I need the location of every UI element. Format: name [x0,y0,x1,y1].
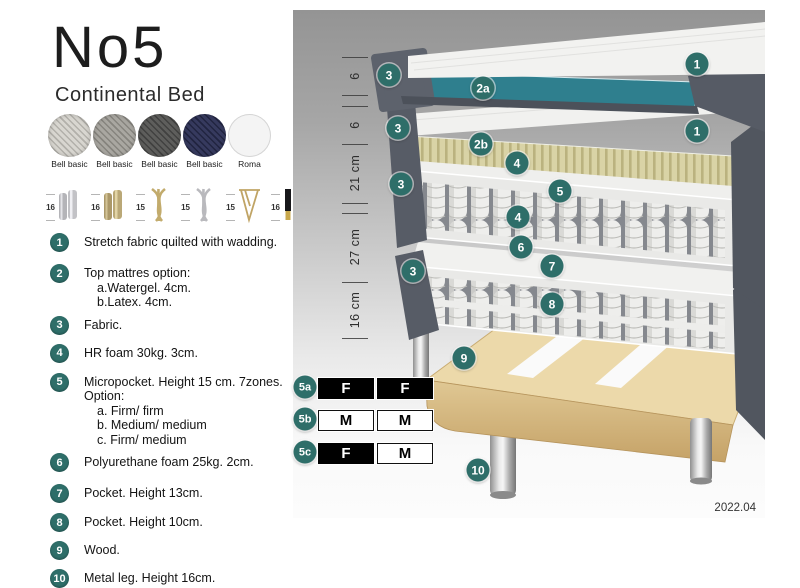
leg-height-label: 16 [269,203,280,212]
feature-item: 2Top mattres option:a.Watergel. 4cm.b.La… [50,264,300,310]
callout-badge-10: 10 [467,459,490,482]
fabric-swatch-label: Bell basicMCD36 [47,160,92,170]
ruler-tick [342,144,368,145]
feature-number-badge: 6 [50,453,69,472]
fabric-swatch-label: Bell basicMCD74 [182,160,227,170]
feature-number-badge: 8 [50,513,69,532]
feature-sub-option: b. Medium/ medium [84,418,300,433]
ruler-label: 21 cm [348,155,362,192]
firmness-cell: F [318,378,374,399]
feature-number-badge: 10 [50,569,69,588]
feature-text: Metal leg. Height 16cm. [84,569,215,586]
feature-item: 10Metal leg. Height 16cm. [50,569,300,588]
firmness-badge-5b: 5b [294,408,317,431]
bed-diagram-panel: 6621 cm27 cm16 cm 132a132b43546378910 5a… [293,10,765,518]
feature-text: Pocket. Height 10cm. [84,513,203,530]
ruler-label: 27 cm [348,229,362,266]
feature-sub-option: c. Firm/ medium [84,433,300,448]
feature-number-badge: 1 [50,233,69,252]
ruler-label: 6 [348,72,362,79]
callout-badge-2b: 2b [470,133,493,156]
feature-text: HR foam 30kg. 3cm. [84,344,198,361]
leg-height-label: 15 [134,203,145,212]
callout-badge-2a: 2a [472,77,495,100]
ruler-label: 6 [348,121,362,128]
cyl-gold-leg-icon [101,186,128,229]
fabric-swatch: Bell basicMCD43 [137,114,182,170]
leg-option: 16 [44,186,89,229]
ruler-tick [342,282,368,283]
fabric-swatch-circle [93,114,136,157]
feature-sub-option: b.Latex. 4cm. [84,295,191,310]
leg-height-label: 16 [89,203,100,212]
feature-text: Top mattres option:a.Watergel. 4cm.b.Lat… [84,264,191,310]
feature-item: 1Stretch fabric quilted with wadding. [50,233,300,252]
metal-leg-right [690,418,712,485]
firmness-cell: M [318,410,374,431]
callout-badge-4: 4 [507,206,530,229]
feature-sub-option: a. Firm/ firm [84,404,300,419]
fabric-swatch-row: Bell basicMCD36Bell basicMCD32Bell basic… [47,114,272,170]
product-title: No5 [52,14,167,81]
feature-number-badge: 4 [50,344,69,363]
callout-badge-6: 6 [510,236,533,259]
fabric-swatch-circle [183,114,226,157]
height-ruler: 6621 cm27 cm16 cm [342,10,372,430]
fabric-swatch-label: Romastretch fabric [227,160,272,170]
ruler-tick [342,106,368,107]
feature-item: 5Micropocket. Height 15 cm. 7zones. Opti… [50,373,300,448]
feature-item: 3Fabric. [50,316,300,335]
metal-leg-front [490,430,516,499]
fabric-swatch-label: Bell basicMCD43 [137,160,182,170]
leg-option: 15 [224,186,269,229]
callout-badge-3: 3 [387,117,410,140]
ruler-tick [342,213,368,214]
feature-item: 4HR foam 30kg. 3cm. [50,344,300,363]
leg-options-row: 161615151516 [44,186,314,229]
leg-height-label: 15 [179,203,190,212]
feature-text: Fabric. [84,316,122,333]
leg-option: 15 [179,186,224,229]
feature-number-badge: 3 [50,316,69,335]
feature-list: 1Stretch fabric quilted with wadding.2To… [50,233,300,588]
feature-text: Polyurethane foam 25kg. 2cm. [84,453,254,470]
ruler-tick [342,338,368,339]
callout-badge-1: 1 [686,120,709,143]
fabric-swatch: Romastretch fabric [227,114,272,170]
callout-badge-9: 9 [453,347,476,370]
cyl-silver-leg-icon [56,186,83,229]
fabric-swatch-circle [138,114,181,157]
twist-silver-leg-icon [191,186,218,229]
twist-gold-leg-icon [146,186,173,229]
feature-item: 6Polyurethane foam 25kg. 2cm. [50,453,300,472]
ruler-tick [342,95,368,96]
leg-height-label: 15 [224,203,235,212]
callout-badge-8: 8 [541,293,564,316]
feature-number-badge: 2 [50,264,69,283]
fabric-swatch: Bell basicMCD36 [47,114,92,170]
feature-text: Wood. [84,541,120,558]
firmness-badge-5c: 5c [294,441,317,464]
firmness-cell: M [377,443,433,464]
feature-text: Stretch fabric quilted with wadding. [84,233,277,250]
feature-sub-option: a.Watergel. 4cm. [84,281,191,296]
ruler-label: 16 cm [348,292,362,329]
firmness-badge-5a: 5a [294,376,317,399]
leg-height-label: 16 [44,203,55,212]
feature-number-badge: 7 [50,484,69,503]
feature-item: 8Pocket. Height 10cm. [50,513,300,532]
callout-badge-5: 5 [549,180,572,203]
firmness-cell: M [377,410,433,431]
callout-badge-1: 1 [686,53,709,76]
spec-column: No5 Continental Bed Bell basicMCD36Bell … [0,0,293,533]
leg-option: 16 [89,186,134,229]
feature-item: 9Wood. [50,541,300,560]
fabric-swatch-circle [48,114,91,157]
firmness-bar: FF [318,378,433,399]
product-subtitle: Continental Bed [55,84,205,107]
hairpin-leg-icon [236,186,263,229]
firmness-cell: F [377,378,433,399]
version-label: 2022.04 [714,502,756,514]
callout-badge-3: 3 [378,64,401,87]
firmness-bar: MM [318,410,433,431]
callout-badge-7: 7 [541,255,564,278]
feature-number-badge: 9 [50,541,69,560]
callout-badge-3: 3 [402,260,425,283]
feature-text: Micropocket. Height 15 cm. 7zones. Optio… [84,373,300,448]
feature-text: Pocket. Height 13cm. [84,484,203,501]
fabric-swatch-label: Bell basicMCD32 [92,160,137,170]
fabric-swatch: Bell basicMCD74 [182,114,227,170]
callout-badge-3: 3 [390,173,413,196]
ruler-tick [342,203,368,204]
fabric-swatch: Bell basicMCD32 [92,114,137,170]
leg-option: 15 [134,186,179,229]
firmness-bar: FM [318,443,433,464]
fabric-swatch-circle [228,114,271,157]
firmness-cell: F [318,443,374,464]
feature-number-badge: 5 [50,373,69,392]
ruler-tick [342,57,368,58]
callout-badge-4: 4 [506,152,529,175]
feature-item: 7Pocket. Height 13cm. [50,484,300,503]
